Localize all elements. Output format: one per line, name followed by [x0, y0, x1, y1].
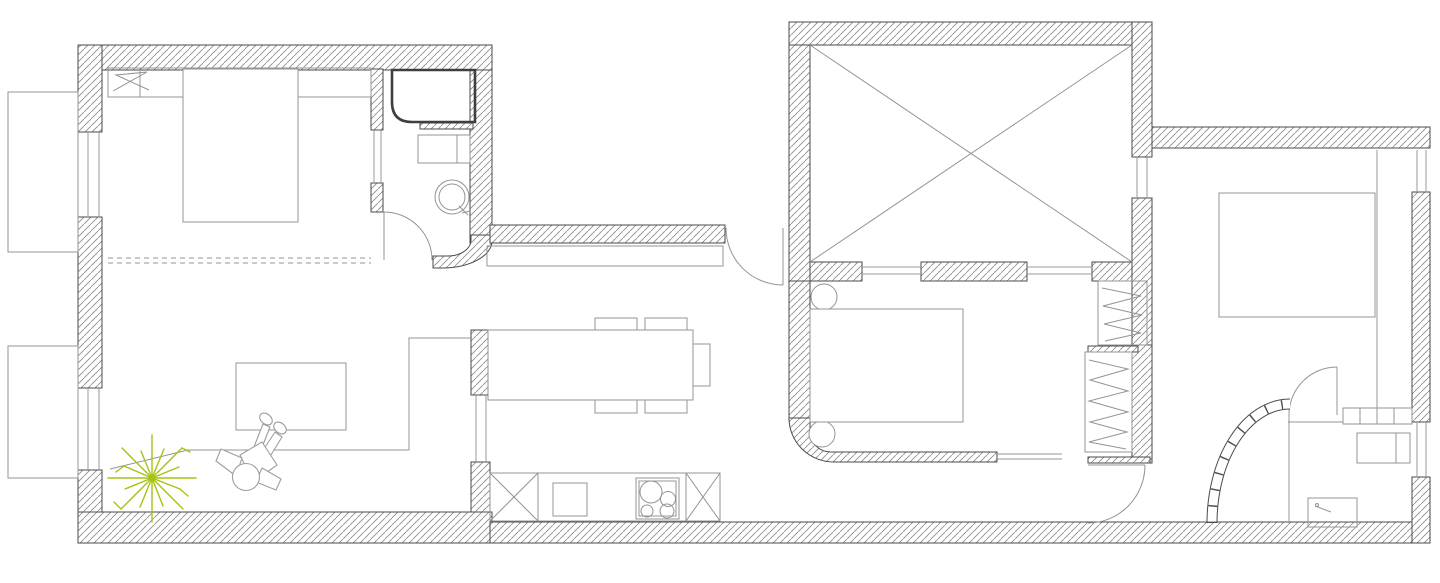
- round-washbasin: [435, 180, 469, 214]
- wall-kitchen-stub-upper: [471, 330, 490, 395]
- burner: [640, 481, 662, 503]
- wall-storage-right-upper: [1132, 22, 1152, 157]
- washing-machine-left: [418, 135, 470, 163]
- room-living: [108, 338, 472, 522]
- glass-block-fill: [1212, 404, 1290, 523]
- wall-left-middle: [78, 217, 102, 388]
- potted-plant: [108, 435, 196, 522]
- wardrobe-hangers-zigzag: [1089, 360, 1128, 449]
- dining-chair: [595, 318, 637, 331]
- room-bathroom-right: [1212, 404, 1412, 527]
- wall-window-band-a: [810, 262, 862, 281]
- round-nightstand: [811, 284, 837, 310]
- wall-bath-divider-lower: [371, 183, 383, 212]
- wall-window-band-c: [1092, 262, 1132, 281]
- floor-plan-canvas: [0, 0, 1440, 583]
- lounge-person: [216, 411, 289, 491]
- wall-curved-entry-foot: [433, 235, 492, 268]
- balcony-bottom: [8, 346, 78, 478]
- wall-left-upper: [78, 45, 102, 132]
- wall-storage-left: [789, 22, 810, 281]
- floor-plan-svg: [0, 0, 1440, 583]
- shower-drain: [1316, 504, 1319, 507]
- door-swing-bathroom-left: [384, 212, 432, 260]
- kitchen-sink: [553, 483, 587, 516]
- dining-chair: [645, 400, 687, 413]
- wall-wardrobe-side: [1132, 345, 1152, 463]
- wall-bottom-right: [490, 522, 1430, 543]
- room-bedroom-middle: [809, 281, 1147, 459]
- cooktop-inner: [639, 481, 676, 516]
- wall-corridor-top: [490, 225, 725, 243]
- wall-top-right-wing: [1152, 127, 1430, 148]
- burner: [641, 505, 653, 517]
- dining-chair: [595, 400, 637, 413]
- door-swing-hallway: [1088, 465, 1145, 523]
- room-bedroom-left: [108, 68, 371, 263]
- double-bed-middle: [810, 309, 963, 422]
- radiator-zigzag: [113, 72, 149, 91]
- balcony-top: [8, 92, 78, 252]
- dining-chair-end: [693, 344, 710, 386]
- round-nightstand: [809, 421, 835, 447]
- room-kitchen-dining: [488, 318, 720, 521]
- corridor-bench: [487, 246, 723, 266]
- wall-right-middle: [1412, 192, 1430, 422]
- wall-bedroom-middle-left: [789, 281, 810, 420]
- wall-storage-right-lower: [1132, 198, 1152, 345]
- wall-bathroom-right-side: [470, 70, 492, 243]
- double-bed-left: [183, 69, 298, 222]
- room-bathroom-left: [384, 70, 475, 260]
- dining-chair: [645, 318, 687, 331]
- washing-machine-right: [1357, 433, 1410, 463]
- door-swing-bedroom-right: [1289, 367, 1337, 415]
- double-bed-right: [1219, 193, 1375, 317]
- wall-top-left-wing: [78, 45, 492, 70]
- wall-right-lower: [1412, 477, 1430, 543]
- wall-storage-top: [789, 22, 1152, 45]
- shelf-strip-upper: [1088, 346, 1138, 352]
- dining-table: [488, 330, 693, 400]
- room-bedroom-right: [1219, 150, 1377, 415]
- bath-shelf-strip: [420, 123, 473, 129]
- coffee-table: [236, 363, 346, 430]
- door-swing-corridor: [726, 228, 783, 285]
- hallway: [1088, 465, 1145, 523]
- shelf-strip-lower: [1088, 457, 1150, 463]
- wall-bath-divider-upper: [371, 69, 383, 130]
- wall-kitchen-stub-lower: [471, 462, 490, 512]
- room-storage-x: [810, 45, 1132, 262]
- shower-cabin: [392, 70, 475, 122]
- wall-bottom-left: [78, 512, 492, 543]
- wall-window-band-b: [921, 262, 1027, 281]
- person-head: [233, 464, 260, 491]
